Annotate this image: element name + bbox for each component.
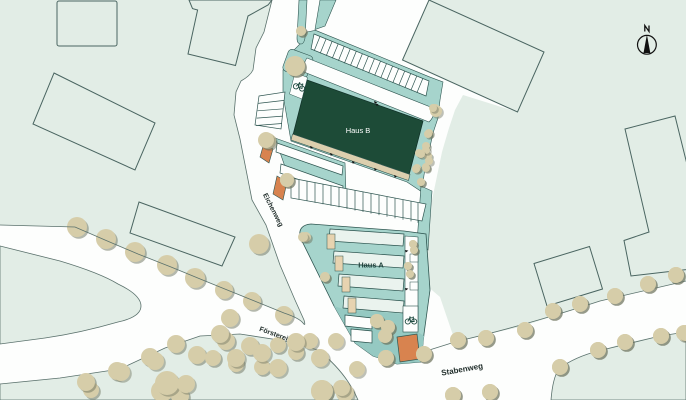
svg-text:Haus B: Haus B	[346, 126, 371, 135]
svg-text:Haus A: Haus A	[358, 261, 384, 270]
